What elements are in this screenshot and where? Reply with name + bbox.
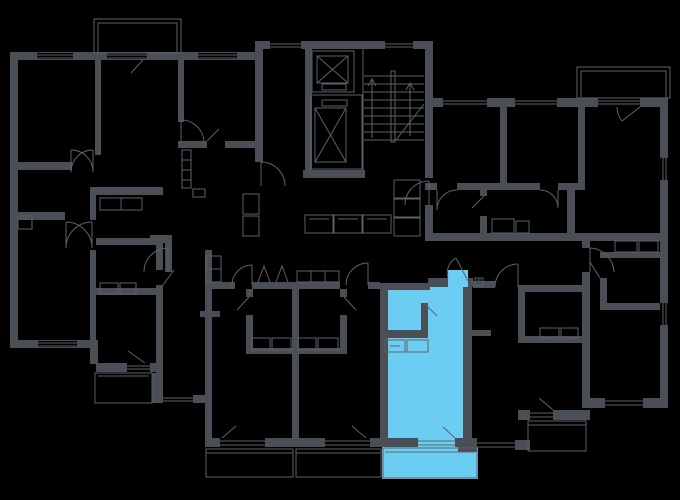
door-balcony-middle-right — [539, 398, 553, 410]
hall-closet — [100, 198, 142, 210]
balcony-top-left — [94, 19, 181, 53]
door-balcony-top-right — [617, 107, 640, 121]
door-balcony-left — [128, 351, 145, 363]
door-bathroom-unit-right — [344, 297, 356, 310]
door-middle-right — [495, 264, 518, 287]
lobby-cabinet — [243, 194, 259, 236]
door-balcony-unit-right — [352, 426, 366, 438]
wardrobe — [182, 150, 191, 188]
balcony-top-right — [577, 67, 670, 98]
window — [325, 439, 370, 446]
door-right-studio-bathroom — [590, 262, 600, 278]
lobby-mailboxes — [305, 180, 420, 236]
window — [270, 42, 301, 48]
door-leaf — [207, 129, 219, 141]
elevator-shaft-small — [312, 51, 354, 92]
door-bedroom-2 — [540, 190, 558, 208]
window — [163, 396, 193, 402]
door-balcony-top-left — [131, 60, 143, 73]
floor-plan — [0, 0, 680, 500]
window — [38, 341, 77, 347]
door-bedroom-1 — [437, 190, 457, 210]
window — [220, 439, 265, 446]
double-door-hall — [71, 150, 93, 172]
door-balcony-unit-left — [222, 426, 236, 438]
window — [515, 99, 557, 106]
walls — [10, 41, 668, 452]
window — [37, 53, 73, 59]
door-unit-right — [346, 263, 368, 285]
elevator-shaft-large — [311, 95, 362, 169]
window — [198, 53, 237, 59]
window — [661, 158, 667, 180]
cabinet — [193, 189, 205, 197]
window — [661, 303, 667, 325]
floor-plan-canvas — [0, 0, 680, 500]
door-bathroom-left — [163, 270, 174, 285]
window — [443, 99, 487, 106]
staircase — [363, 49, 424, 170]
balcony-middle-right — [528, 421, 586, 451]
window — [385, 42, 413, 48]
bathroom-fixtures-top-right — [492, 219, 529, 233]
balcony-left-stepped — [95, 373, 152, 403]
stair-direction-arrow — [406, 83, 414, 136]
balcony-bottom-center-right — [296, 449, 381, 477]
door-bedroom-top-left — [181, 120, 204, 143]
kitchen-right-studio — [615, 241, 658, 252]
parapet-lines — [477, 443, 515, 447]
balcony-bottom-center-left — [206, 449, 293, 477]
door-leaf-peaks — [258, 266, 288, 282]
window — [127, 364, 150, 371]
elevator-core — [311, 49, 424, 170]
window — [605, 399, 643, 407]
closet-right-unit — [297, 271, 339, 282]
window — [530, 411, 553, 419]
fixtures — [18, 150, 658, 352]
door-bathroom-unit-left — [237, 297, 249, 310]
window — [107, 53, 147, 59]
door-bathroom-top-right — [472, 196, 484, 208]
window — [598, 99, 640, 106]
door-apartment-top-left — [261, 162, 285, 186]
double-door-bedroom — [66, 222, 92, 248]
window-highlighted-unit — [418, 439, 455, 446]
